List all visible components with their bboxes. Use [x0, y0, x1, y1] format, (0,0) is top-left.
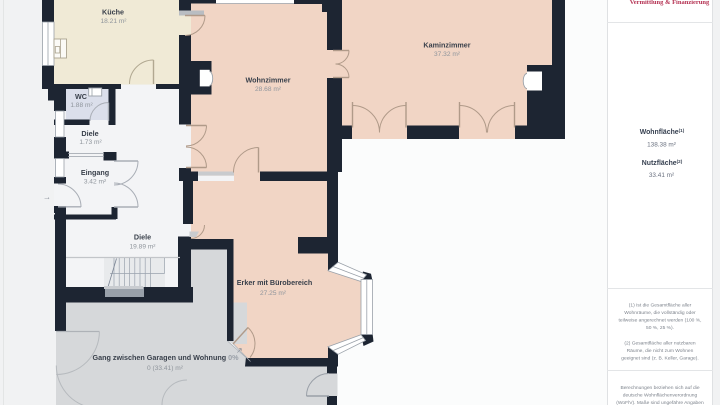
svg-text:37.32 m²: 37.32 m²	[434, 51, 461, 58]
svg-text:Küche: Küche	[102, 8, 124, 17]
svg-text:0 (33.41) m²: 0 (33.41) m²	[147, 365, 184, 372]
svg-text:Wohnzimmer: Wohnzimmer	[246, 75, 291, 84]
svg-text:(1) Ist die Gesamtfläche aller: (1) Ist die Gesamtfläche aller	[629, 303, 692, 309]
svg-text:3.42 m²: 3.42 m²	[84, 179, 107, 186]
svg-text:(2) Gesamtfläche aller nutzbar: (2) Gesamtfläche aller nutzbaren	[624, 341, 696, 347]
svg-text:Vermittlung & Finanzierung: Vermittlung & Finanzierung	[630, 0, 710, 6]
svg-text:1.88 m²: 1.88 m²	[70, 102, 93, 109]
svg-text:Diele: Diele	[134, 233, 151, 242]
svg-text:28.68 m²: 28.68 m²	[255, 86, 282, 93]
svg-text:18.21 m²: 18.21 m²	[100, 18, 127, 25]
svg-text:19.89 m²: 19.89 m²	[129, 244, 156, 251]
svg-text:geeignet sind (z. B. Keller, G: geeignet sind (z. B. Keller, Garage).	[621, 356, 698, 362]
svg-text:33.41 m²: 33.41 m²	[649, 172, 674, 179]
svg-text:teilweise angerechnet werden (: teilweise angerechnet werden (100 %,	[619, 318, 702, 324]
svg-text:Wohnräume, die vollständig ode: Wohnräume, die vollständig oder	[624, 310, 696, 316]
svg-text:Diele: Diele	[81, 129, 98, 138]
svg-text:27.25 m²: 27.25 m²	[260, 290, 287, 297]
svg-text:Räume, die nicht zum Wohnen: Räume, die nicht zum Wohnen	[627, 348, 694, 354]
svg-text:Erker mit Bürobereich: Erker mit Bürobereich	[237, 278, 313, 287]
svg-text:Berechnungen beziehen sich auf: Berechnungen beziehen sich auf die	[620, 385, 699, 391]
svg-text:(WoFlV). Maße sind ungefähre A: (WoFlV). Maße sind ungefähre Angaben	[616, 400, 704, 405]
svg-text:50 %, 25 %).: 50 %, 25 %).	[646, 325, 674, 331]
svg-text:WC: WC	[75, 92, 87, 101]
svg-text:Kaminzimmer: Kaminzimmer	[423, 41, 470, 50]
svg-text:Nutzfläche(2): Nutzfläche(2)	[642, 159, 683, 167]
svg-text:→: →	[43, 193, 51, 202]
svg-text:1.73 m²: 1.73 m²	[79, 139, 102, 146]
svg-text:Wohnfläche(1): Wohnfläche(1)	[640, 128, 685, 136]
svg-text:Gang zwischen Garagen und Wohn: Gang zwischen Garagen und Wohnung 0%	[92, 353, 239, 362]
svg-text:138.38 m²: 138.38 m²	[647, 141, 676, 148]
svg-text:Eingang: Eingang	[81, 168, 109, 177]
svg-text:deutsche Wohnflächenverordnung: deutsche Wohnflächenverordnung	[623, 393, 698, 399]
